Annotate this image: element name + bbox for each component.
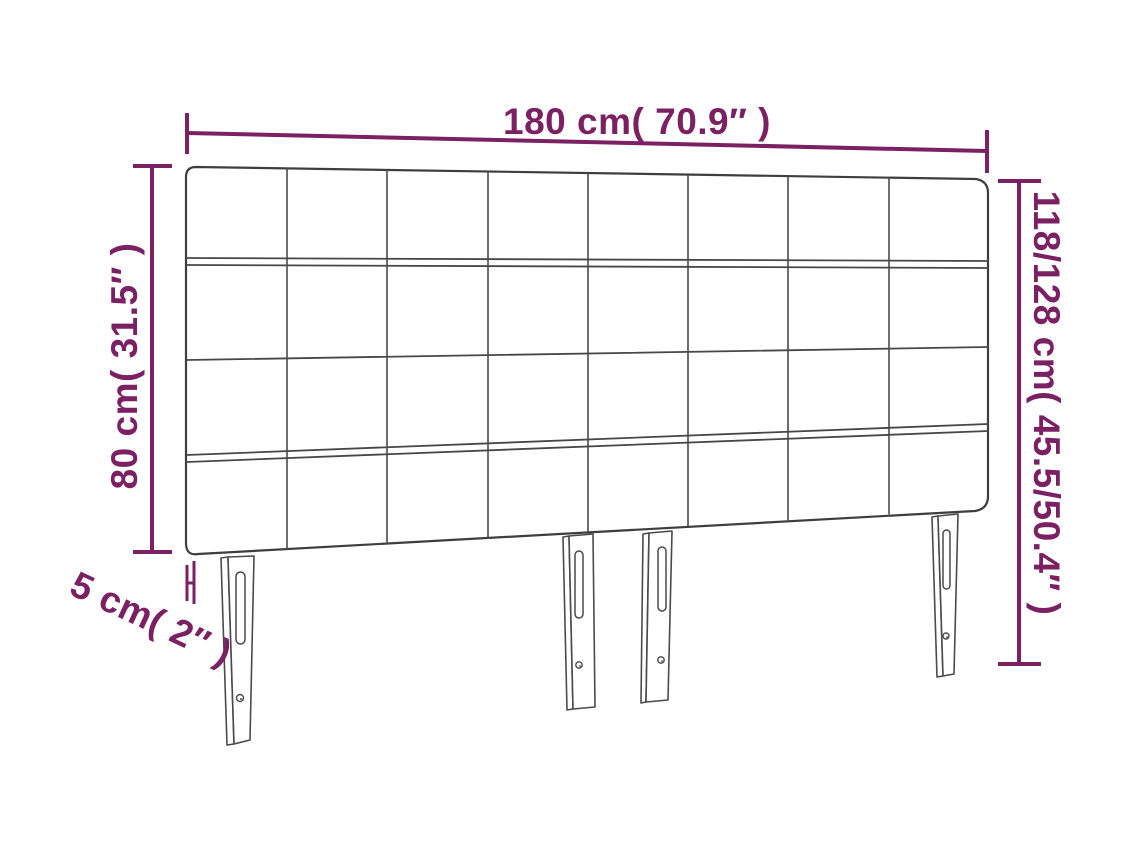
leg-screw-dot xyxy=(946,636,948,638)
headboard-leg-3 xyxy=(641,531,672,703)
leg-slot xyxy=(575,551,583,618)
width-dimension-label: 180 cm( 70.9″ ) xyxy=(503,101,771,142)
leg-screw-hole xyxy=(237,695,244,702)
leg-screw-hole xyxy=(943,633,949,639)
headboard-leg-4 xyxy=(932,514,958,677)
leg-screw-hole xyxy=(658,657,664,663)
headboard-dimension-drawing: 180 cm( 70.9″ ) 80 cm( 31.5″ ) 118/128 c… xyxy=(0,0,1126,844)
width-dimension: 180 cm( 70.9″ ) xyxy=(187,101,987,173)
headboard-leg-2 xyxy=(563,534,595,710)
leg-screw-dot xyxy=(661,660,663,662)
panel-height-dimension: 80 cm( 31.5″ ) xyxy=(104,166,172,552)
leg-slot xyxy=(236,572,245,644)
panel-height-dimension-label: 80 cm( 31.5″ ) xyxy=(104,243,145,490)
leg-screw-dot xyxy=(240,698,242,700)
dimension-diagram: 180 cm( 70.9″ ) 80 cm( 31.5″ ) 118/128 c… xyxy=(0,0,1126,844)
headboard-panel xyxy=(186,167,988,554)
thickness-dimension-label: 5 cm( 2″ ) xyxy=(64,564,238,674)
leg-screw-hole xyxy=(576,662,582,668)
total-height-dimension-label: 118/128 cm( 45.5/50.4″ ) xyxy=(1026,191,1067,616)
total-height-dimension: 118/128 cm( 45.5/50.4″ ) xyxy=(998,181,1067,664)
thickness-dimension: 5 cm( 2″ ) xyxy=(64,561,238,674)
leg-slot xyxy=(658,547,666,611)
leg-screw-dot xyxy=(579,665,581,667)
leg-slot xyxy=(943,530,950,589)
